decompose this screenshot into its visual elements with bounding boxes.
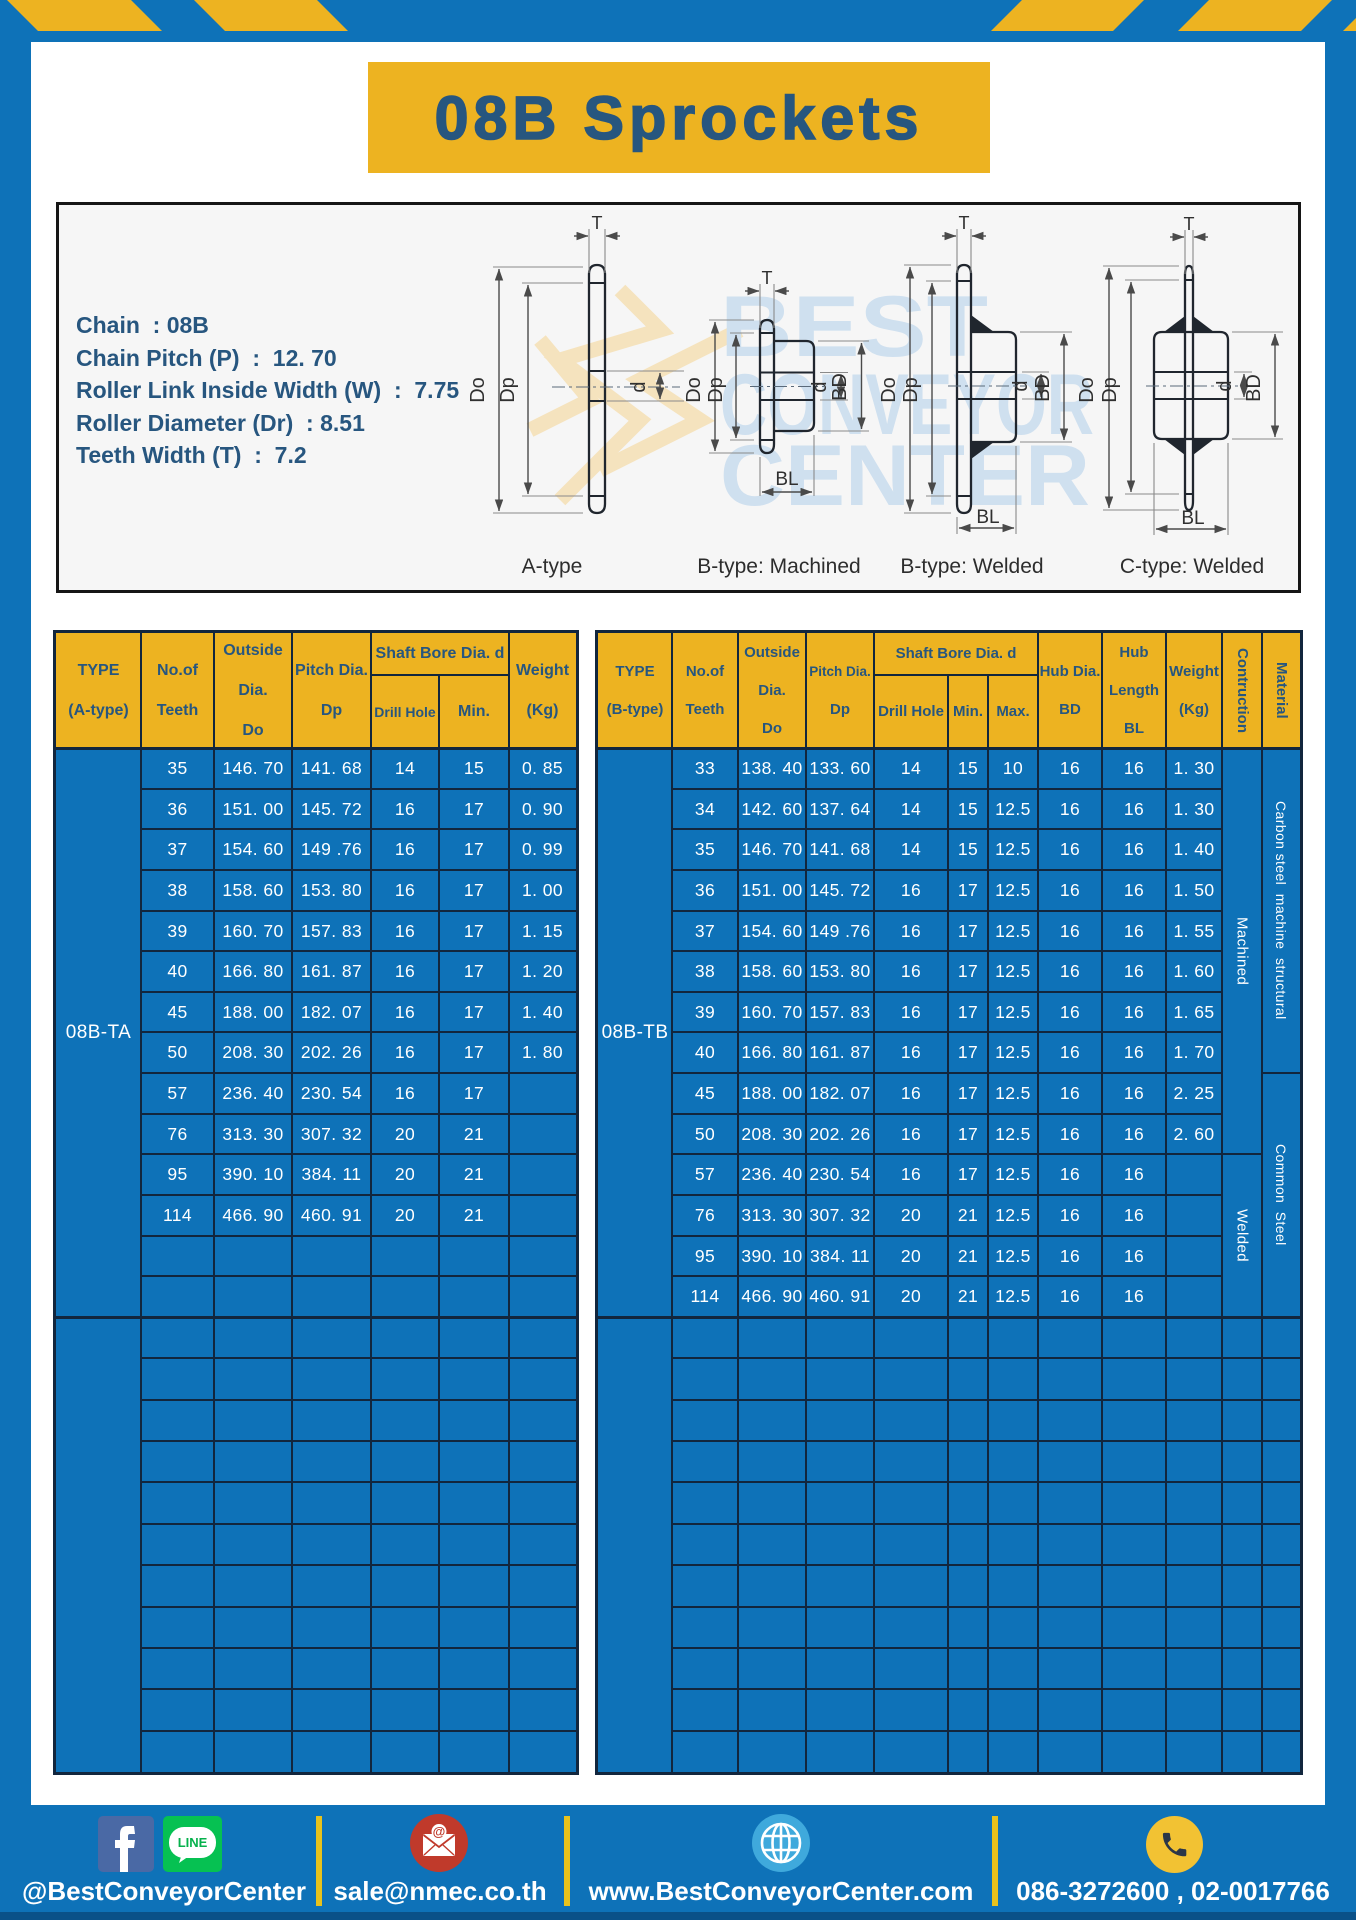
svg-text:@: @	[433, 1824, 446, 1839]
svg-text:d: d	[1214, 380, 1236, 391]
svg-text:B-type: Welded: B-type: Welded	[900, 555, 1043, 578]
svg-text:Do: Do	[878, 377, 900, 403]
svg-text:Do: Do	[683, 377, 705, 403]
svg-text:Dp: Dp	[497, 377, 519, 403]
svg-text:LINE: LINE	[178, 1835, 208, 1850]
svg-text:Dp: Dp	[705, 377, 727, 403]
svg-text:d: d	[628, 381, 650, 392]
svg-text:Do: Do	[467, 377, 489, 403]
svg-text:BL: BL	[1181, 508, 1204, 529]
svg-text:Do: Do	[1076, 377, 1098, 403]
svg-text:d: d	[809, 381, 831, 392]
svg-text:A-type: A-type	[522, 555, 583, 578]
svg-text:C-type: Welded: C-type: Welded	[1120, 555, 1264, 578]
svg-text:d: d	[1010, 380, 1032, 391]
svg-text:BD: BD	[829, 373, 851, 401]
svg-text:BD: BD	[1243, 374, 1265, 402]
svg-text:Dp: Dp	[1099, 377, 1121, 403]
svg-text:BL: BL	[976, 507, 999, 528]
svg-text:BL: BL	[775, 469, 798, 490]
svg-text:T: T	[1184, 214, 1195, 234]
svg-text:Dp: Dp	[900, 377, 922, 403]
svg-text:T: T	[762, 268, 773, 288]
svg-text:T: T	[592, 213, 603, 233]
svg-text:BD: BD	[1032, 374, 1054, 402]
svg-text:B-type: Machined: B-type: Machined	[697, 555, 860, 578]
svg-text:T: T	[959, 213, 970, 233]
